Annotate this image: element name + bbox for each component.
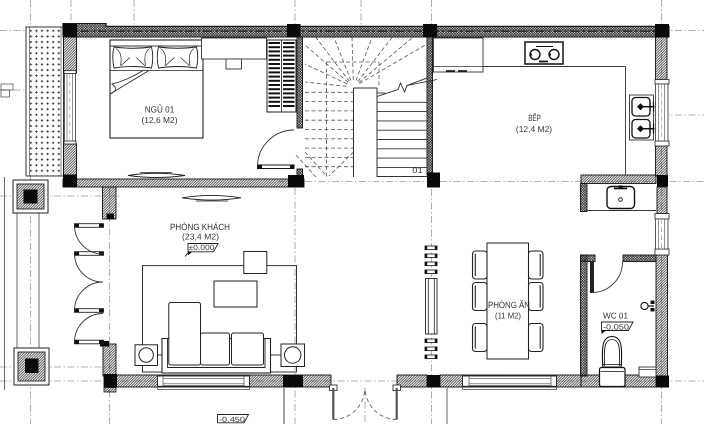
svg-text:WC 01: WC 01 [603, 311, 628, 321]
svg-text:-0.450: -0.450 [219, 415, 245, 424]
svg-text:NGỦ 01: NGỦ 01 [145, 104, 175, 115]
svg-text:PHÒNG KHÁCH: PHÒNG KHÁCH [170, 222, 230, 232]
svg-text:PHÒNG ĂN: PHÒNG ĂN [488, 300, 530, 310]
svg-text:(12,6 M2): (12,6 M2) [142, 115, 178, 125]
svg-text:±0.000: ±0.000 [189, 243, 215, 252]
svg-text:-0.050: -0.050 [603, 323, 629, 332]
svg-text:01: 01 [412, 166, 423, 175]
svg-text:BẾP: BẾP [528, 112, 541, 123]
svg-text:(11 M2): (11 M2) [495, 310, 521, 320]
svg-text:(12,4 M2): (12,4 M2) [516, 124, 552, 134]
svg-text:(23,4 M2): (23,4 M2) [182, 231, 219, 241]
